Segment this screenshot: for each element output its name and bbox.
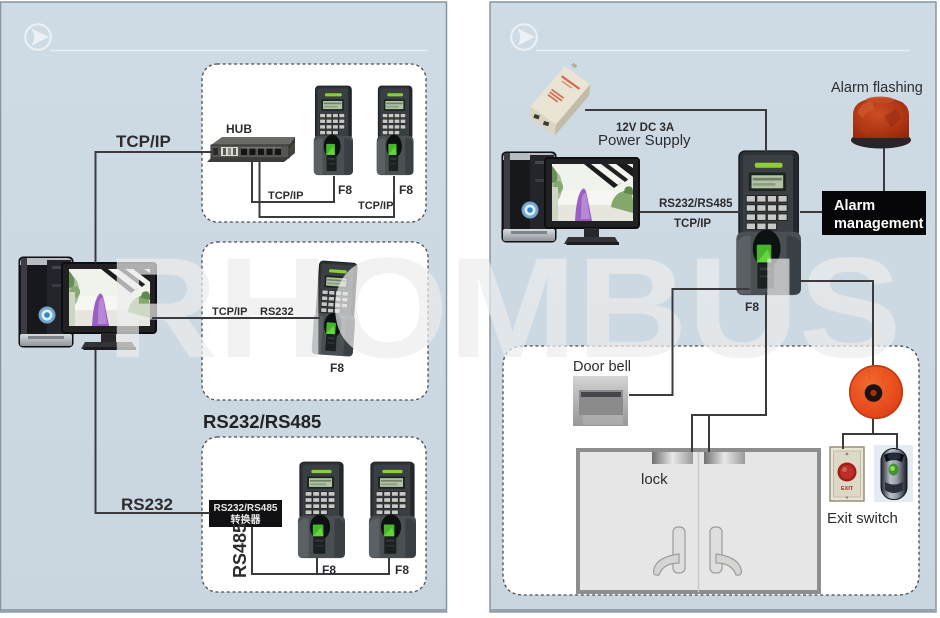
svg-text:F8: F8 (322, 563, 336, 577)
svg-text:Alarm: Alarm (834, 198, 875, 214)
svg-text:TCP/IP: TCP/IP (116, 132, 171, 151)
svg-text:F8: F8 (745, 300, 759, 314)
svg-text:F8: F8 (399, 183, 413, 197)
svg-text:TCP/IP: TCP/IP (212, 306, 247, 318)
svg-text:F8: F8 (395, 563, 409, 577)
svg-text:Exit switch: Exit switch (827, 510, 898, 527)
svg-text:TCP/IP: TCP/IP (358, 200, 393, 212)
svg-text:RS232/RS485: RS232/RS485 (214, 503, 278, 514)
svg-text:Alarm flashing: Alarm flashing (831, 80, 923, 96)
svg-text:Power Supply: Power Supply (598, 132, 691, 149)
svg-text:F8: F8 (330, 361, 344, 375)
svg-text:RS232: RS232 (260, 306, 294, 318)
svg-text:TCP/IP: TCP/IP (268, 190, 303, 202)
svg-text:F8: F8 (338, 183, 352, 197)
svg-text:RS232: RS232 (121, 495, 173, 514)
svg-text:RS232/RS485: RS232/RS485 (203, 411, 321, 432)
svg-text:Door bell: Door bell (573, 359, 631, 375)
svg-text:EXIT: EXIT (841, 486, 854, 492)
svg-text:RS232/RS485: RS232/RS485 (659, 198, 733, 210)
svg-text:RS485: RS485 (230, 523, 250, 578)
svg-text:HUB: HUB (226, 122, 252, 136)
svg-text:TCP/IP: TCP/IP (674, 218, 711, 230)
svg-text:lock: lock (641, 471, 668, 488)
